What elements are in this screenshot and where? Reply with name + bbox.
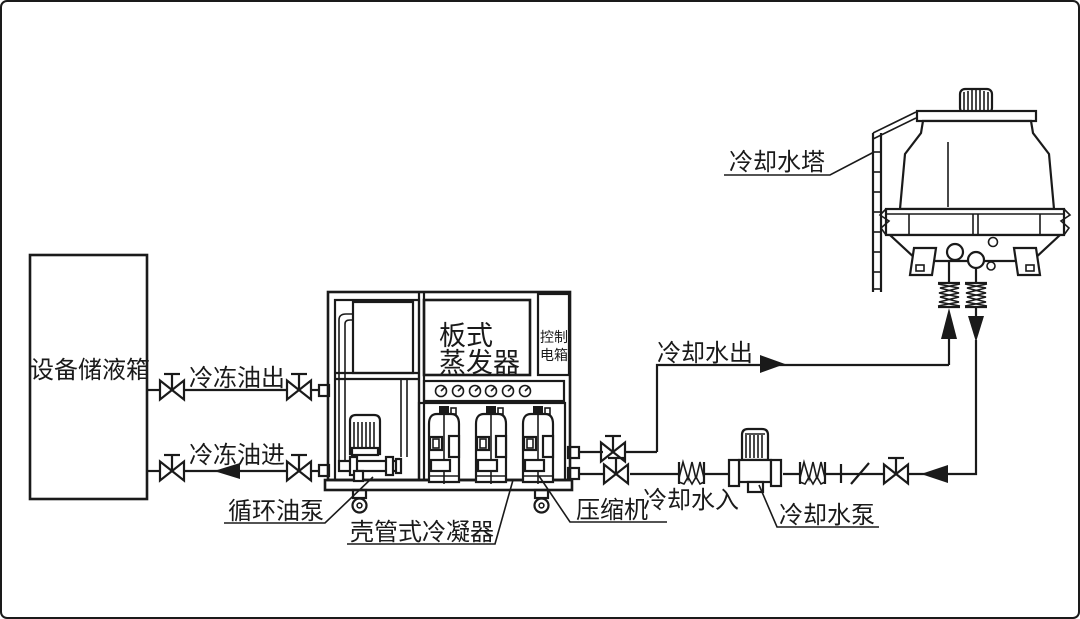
- cooling-water-in-label: 冷却水入: [643, 487, 739, 514]
- flow-arrow-up-icon: [941, 308, 957, 339]
- piping-diagram: 设备储液箱 冷冻油出 冷冻油进: [2, 2, 1080, 619]
- cooling-water-pump-label: 冷却水泵: [779, 502, 875, 529]
- tower-basin: [880, 209, 1070, 235]
- cooling-tower: 冷却水塔: [724, 89, 1070, 292]
- plate-evaporator: 板式 蒸发器: [424, 300, 530, 378]
- caster-wheel-icon: [353, 490, 367, 513]
- oil-out-line: 冷冻油出: [147, 365, 329, 400]
- cooling-water-out-line: 冷却水出: [579, 260, 960, 462]
- valve-icon: [160, 455, 184, 481]
- plate-evaporator-label-line1: 板式: [439, 321, 493, 351]
- cooling-water-pump: [729, 429, 781, 492]
- cooling-water-in-line: 冷却水入: [579, 268, 987, 514]
- bellows-connector-icon: [938, 283, 960, 307]
- cooling-water-out-label: 冷却水出: [657, 340, 753, 367]
- callout-circulating-oil-pump: 循环油泵: [224, 477, 373, 525]
- compressor-3: [523, 406, 553, 484]
- flex-connector-icon: [800, 462, 825, 484]
- valve-icon: [287, 455, 311, 481]
- compressor-2: [476, 406, 506, 484]
- diagram-canvas: 设备储液箱 冷冻油出 冷冻油进: [0, 0, 1080, 619]
- control-box-label-line2: 电箱: [540, 347, 568, 363]
- gauge-icon: [436, 386, 531, 397]
- valve-icon: [160, 374, 184, 400]
- plate-evaporator-label-line2: 蒸发器: [439, 348, 520, 378]
- flow-arrow-left-icon: [921, 465, 948, 483]
- callout-cooling-water-pump: 冷却水泵: [759, 485, 879, 529]
- fan-motor-icon: [960, 89, 992, 113]
- tower-hopper: [890, 235, 1060, 275]
- gauge-strip: [424, 381, 564, 401]
- storage-tank: 设备储液箱: [30, 255, 150, 499]
- control-box-label-line1: 控制: [540, 329, 568, 345]
- circulating-oil-pump: [339, 415, 401, 481]
- compressor-1: [429, 406, 459, 484]
- tower-body: [900, 121, 1054, 209]
- storage-tank-label: 设备储液箱: [30, 357, 150, 384]
- compressor-bay: [419, 403, 565, 484]
- circulating-oil-pump-label: 循环油泵: [228, 498, 324, 525]
- flow-arrow-right-icon: [760, 355, 785, 373]
- oil-out-label: 冷冻油出: [189, 365, 285, 392]
- control-box: 控制 电箱: [538, 294, 569, 375]
- flex-connector-icon: [679, 462, 704, 484]
- flow-arrow-down-icon: [968, 316, 984, 342]
- caster-wheel-icon: [535, 490, 549, 513]
- panel: [353, 302, 413, 373]
- pump-compartment: [335, 300, 419, 481]
- oil-in-line: 冷冻油进: [147, 442, 329, 481]
- shell-tube-condenser-label: 壳管式冷凝器: [350, 519, 494, 546]
- oil-in-label: 冷冻油进: [189, 442, 285, 469]
- bellows-connector-icon: [965, 283, 987, 307]
- valve-icon: [884, 458, 908, 484]
- cooling-tower-label: 冷却水塔: [729, 149, 825, 176]
- compressor-label: 压缩机: [576, 497, 648, 524]
- valve-icon: [287, 374, 311, 400]
